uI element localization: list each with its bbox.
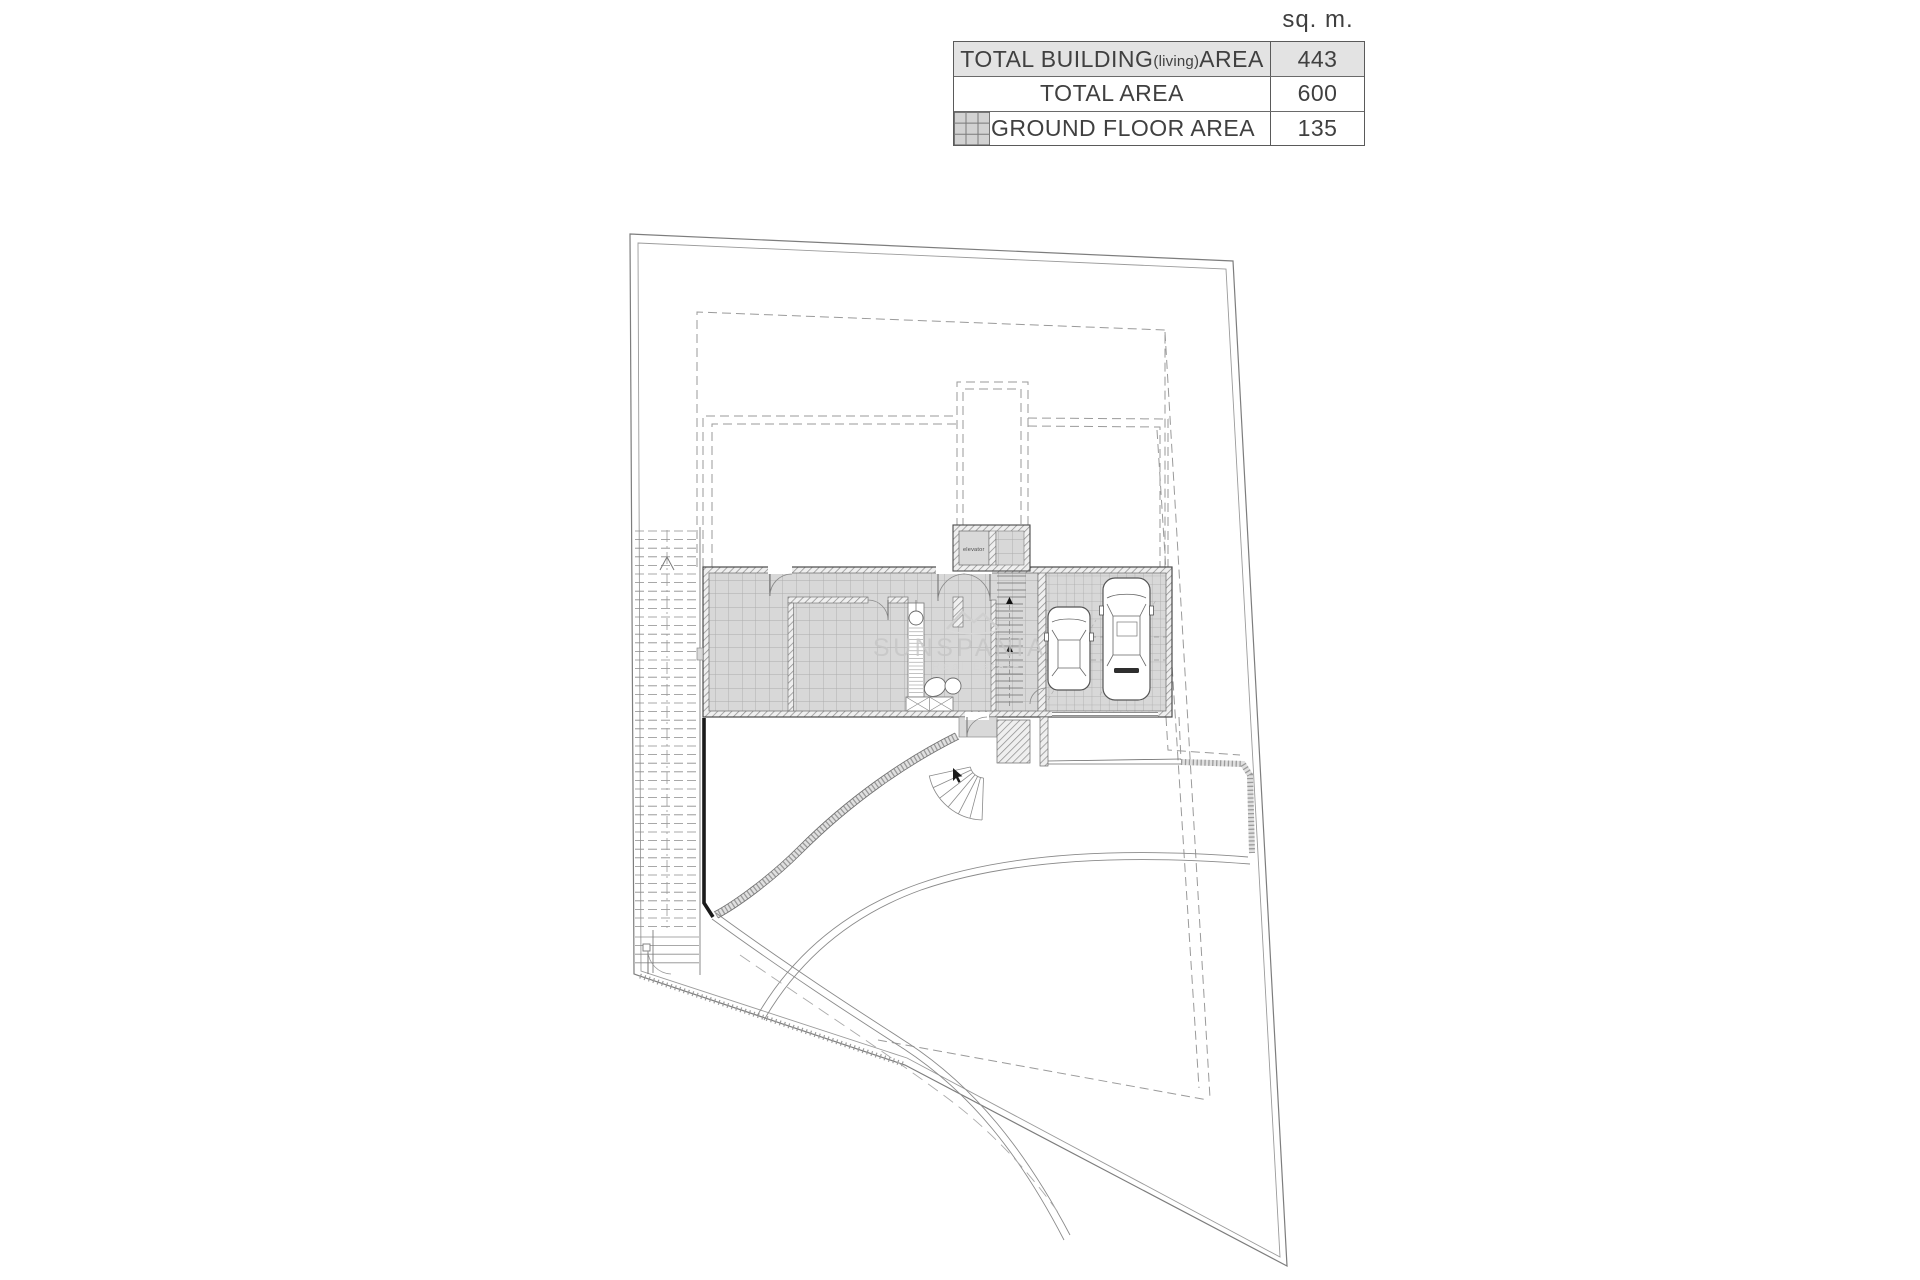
driveway [704, 718, 1252, 1240]
watermark-title: SUNSPANIA [873, 634, 1047, 662]
drawing-line [970, 778, 981, 819]
floor-plan-page: sq. m. TOTAL BUILDING(living) AREA 443 T… [0, 0, 1920, 1280]
roof-outline-dashed [697, 312, 1165, 567]
wall-ledge [697, 648, 703, 660]
driveway-edge [716, 913, 1070, 1235]
pedestrian-gate [643, 944, 671, 974]
drawing-line [958, 776, 977, 813]
driveway-edge [712, 919, 1064, 1240]
driveway-centerline [740, 955, 1060, 1215]
drawing-line [929, 767, 970, 776]
drawing-line [948, 775, 975, 807]
entrance-wall-band [1048, 759, 1252, 853]
car-small [1045, 607, 1094, 690]
floor-outline-dashed-outer [703, 416, 1168, 567]
fence-hatch [640, 976, 903, 1064]
elevator-tower: elevator [953, 525, 1030, 571]
site-plan-drawing: elevator [0, 0, 1920, 1280]
drawing-line [982, 778, 983, 820]
driveway-dashed-edge-2 [1179, 717, 1181, 760]
retaining-wall-band [714, 733, 959, 918]
car-rear-window [1114, 668, 1139, 673]
floor-outline-dashed-inner [712, 424, 1160, 567]
shaft-outline-dashed-outer [957, 382, 1028, 527]
driveway-edge [757, 853, 1248, 1016]
shaft-outline-dashed-inner [963, 389, 1021, 527]
shower-box [906, 697, 953, 711]
left-steps-path [635, 527, 700, 975]
black-retaining-wall [704, 718, 713, 917]
driveway-dashed-edge-1 [1166, 717, 1240, 755]
garage-door [1052, 712, 1158, 717]
elevator-label: elevator [963, 547, 985, 553]
entrance-porch [959, 712, 1048, 766]
fan-stair-rail [970, 767, 983, 778]
plot-boundary [630, 234, 1287, 1266]
drawing-line [933, 770, 971, 788]
cursor-arrow [953, 768, 962, 783]
car-large [1100, 578, 1154, 700]
setback-dashed-bottom [878, 1040, 1208, 1100]
watermark-subtitle: Real Estate [932, 661, 1022, 673]
driveway-edge [764, 860, 1250, 1020]
